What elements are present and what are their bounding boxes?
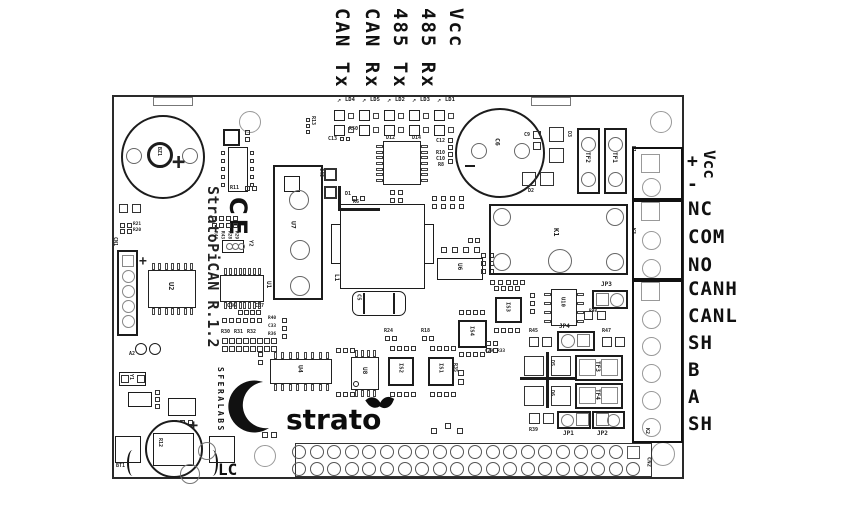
- ic-pin: [311, 352, 314, 359]
- header-pin: [292, 462, 306, 476]
- pad-square: [602, 337, 612, 347]
- header-pin: [433, 462, 447, 476]
- pad-square: [577, 334, 590, 347]
- ref-label-cn1: CN1: [112, 237, 117, 246]
- pad-square: [250, 310, 255, 315]
- ic-pin: [296, 384, 299, 391]
- header-pin: [626, 462, 640, 476]
- ref-label-bz1: BZ1: [156, 147, 161, 156]
- ref-label-r11: R11: [230, 186, 239, 191]
- pad-square: [262, 432, 268, 438]
- ic-pin: [158, 308, 161, 315]
- pad-square: [236, 318, 241, 323]
- pad-square: [233, 223, 238, 228]
- pad-square: [236, 346, 242, 352]
- pad-square: [522, 172, 536, 186]
- pcb-layout-diagram: StratoPiCAN R.1.2 CE SFERALABS strato LC…: [0, 0, 841, 512]
- header-pin: [503, 462, 517, 476]
- pad-circle: [514, 143, 530, 159]
- pad-square: [444, 392, 449, 397]
- pad-square: [244, 310, 249, 315]
- terminal-label-polarity: -: [687, 176, 698, 194]
- pad-square: [271, 338, 277, 344]
- pad-square: [398, 127, 404, 133]
- ref-label-r39: R39: [529, 428, 538, 433]
- pad-square: [127, 229, 132, 234]
- pad-square: [448, 127, 454, 133]
- ref-label-r21: R21: [133, 223, 141, 228]
- pad-square: [437, 392, 442, 397]
- pad-square: [350, 348, 355, 353]
- ic-u10: [551, 289, 577, 326]
- terminal-label-canh: CANH: [688, 280, 738, 299]
- ic-pin: [253, 268, 256, 275]
- led-label-ld4: LD4: [345, 98, 355, 104]
- pad-circle: [122, 315, 135, 328]
- pad-circle: [353, 381, 359, 387]
- ic-pin: [274, 384, 277, 391]
- ref-label-d5: D5: [549, 360, 554, 366]
- pad-square: [324, 186, 337, 199]
- component-outline: [128, 392, 152, 407]
- ref-label-c33: C33: [268, 325, 276, 330]
- pad-circle: [135, 343, 147, 355]
- ic-pin: [304, 384, 307, 391]
- ref-label-tf1: TF1: [611, 152, 617, 163]
- pad-circle: [289, 190, 309, 210]
- ref-label-r13: R13: [310, 116, 315, 125]
- terminal-pin-circle: [642, 391, 661, 410]
- terminal-pin-circle: [642, 310, 661, 329]
- led-pad: [409, 125, 420, 136]
- ic-pin: [224, 268, 227, 275]
- pad-circle: [581, 172, 596, 187]
- signal-label-485-tx: 485 Tx: [390, 8, 409, 89]
- header-pin: [609, 462, 623, 476]
- ic-pin: [376, 168, 383, 171]
- pad-square: [340, 137, 344, 141]
- ref-label-a2: A2: [129, 352, 135, 357]
- led-label-ld5: LD5: [370, 98, 380, 104]
- ic-pin: [421, 173, 428, 176]
- mount-hole: [651, 442, 675, 466]
- pad-square: [221, 175, 225, 179]
- pad-square: [245, 130, 250, 135]
- pad-square: [481, 261, 486, 266]
- pad-square: [404, 346, 409, 351]
- pad-square: [431, 428, 437, 434]
- pad-square: [441, 247, 447, 253]
- ref-label-r43: R43: [219, 231, 224, 239]
- signal-label-485-rx: 485 Rx: [418, 8, 437, 89]
- ic-pin: [544, 311, 551, 314]
- pad-square: [336, 348, 341, 353]
- ref-label-u4: U4: [297, 365, 304, 373]
- pad-square: [250, 159, 254, 163]
- pad-square: [390, 198, 395, 203]
- pad-square: [444, 346, 449, 351]
- pad-square: [250, 346, 256, 352]
- ic-pin: [421, 168, 428, 171]
- terminal-pin-circle: [642, 259, 661, 278]
- pad-square: [458, 379, 464, 385]
- ic-pin: [289, 352, 292, 359]
- ic-pin: [234, 268, 237, 275]
- led-pad: [409, 110, 420, 121]
- ic-pin: [171, 308, 174, 315]
- ic-pin: [248, 268, 251, 275]
- pad-square: [373, 127, 379, 133]
- pad-square: [221, 159, 225, 163]
- pad-square: [463, 247, 469, 253]
- header-pin: [468, 445, 482, 459]
- ic-pin: [577, 320, 584, 323]
- header-pin: [433, 445, 447, 459]
- ref-label-is1: IS1: [437, 363, 443, 373]
- pad-square: [459, 196, 464, 201]
- ref-label-u6: U6: [456, 263, 462, 270]
- board-name-silkscreen: StratoPiCAN R.1.2: [205, 186, 220, 348]
- led-pad: [384, 125, 395, 136]
- led-pad: [334, 125, 345, 136]
- ic-pin: [243, 302, 246, 309]
- ic-pin: [376, 173, 383, 176]
- ic-pin: [421, 156, 428, 159]
- header-pin: [398, 462, 412, 476]
- pad-square: [222, 318, 227, 323]
- header-pin: [398, 445, 412, 459]
- ref-label-jp2: JP2: [597, 431, 608, 437]
- header-pin: [380, 462, 394, 476]
- terminal-pin-circle: [642, 337, 661, 356]
- ic-pin: [304, 352, 307, 359]
- header-pin: [310, 445, 324, 459]
- mount-hole: [650, 111, 672, 133]
- header-pin: [538, 462, 552, 476]
- pad-square: [137, 375, 145, 383]
- mount-hole: [254, 445, 276, 467]
- header-pin: [521, 462, 535, 476]
- pad-square: [250, 167, 254, 171]
- pad-square: [256, 310, 261, 315]
- pad-square: [250, 175, 254, 179]
- pad-square: [252, 186, 257, 191]
- pad-square: [132, 204, 141, 213]
- pad-square: [459, 352, 464, 357]
- component-outline: [223, 129, 240, 146]
- pad-circle: [548, 249, 572, 273]
- ic-pin: [165, 308, 168, 315]
- pad-square: [597, 311, 606, 320]
- pad-square: [282, 318, 287, 323]
- ic-pin: [319, 352, 322, 359]
- header-pin: [345, 462, 359, 476]
- pad-square: [533, 142, 541, 150]
- pad-circle: [122, 285, 135, 298]
- pad-square: [120, 229, 125, 234]
- ic-pin: [373, 390, 376, 397]
- led-label-ld2: LD2: [395, 98, 405, 104]
- pad-square: [480, 310, 485, 315]
- ic-pin: [361, 390, 364, 397]
- header-pin: [310, 462, 324, 476]
- pad-square: [468, 238, 473, 243]
- ic-pin: [326, 352, 329, 359]
- led-arrow-icon: ↗: [337, 97, 341, 104]
- pad-square: [445, 423, 451, 429]
- pad-square: [520, 280, 525, 285]
- pad-square: [549, 148, 564, 163]
- pad-square: [221, 167, 225, 171]
- terminal-block-k2: [632, 280, 683, 443]
- pad-circle: [126, 148, 142, 164]
- pad-circle: [122, 270, 135, 283]
- pad-circle: [607, 414, 620, 427]
- ic-pin: [319, 384, 322, 391]
- ic-pin: [177, 308, 180, 315]
- ic-pin: [190, 308, 193, 315]
- transformer-l1: [340, 204, 425, 289]
- terminal-label-com: COM: [688, 228, 725, 247]
- pad-circle: [610, 293, 624, 307]
- ref-label-c36: C36: [227, 304, 236, 309]
- header-pin: [450, 462, 464, 476]
- pad-square: [229, 346, 235, 352]
- pad-square: [212, 223, 217, 228]
- ic-pin: [243, 268, 246, 275]
- ref-label-u2: U2: [167, 282, 174, 290]
- led-arrow-icon: ↗: [412, 97, 416, 104]
- pad-square: [513, 280, 518, 285]
- ic-pin: [184, 263, 187, 270]
- pad-square: [122, 255, 134, 267]
- pad-square: [219, 223, 224, 228]
- ref-label-bt1: BT1: [116, 464, 125, 469]
- pad-square: [524, 386, 544, 406]
- pad-square: [243, 338, 249, 344]
- pad-square: [257, 338, 263, 344]
- pad-square: [390, 346, 395, 351]
- ic-pin: [544, 293, 551, 296]
- ic-pin: [577, 293, 584, 296]
- pad-square: [481, 269, 486, 274]
- pad-square: [226, 216, 231, 221]
- ic-pin: [367, 350, 370, 357]
- ref-label-r35: R35: [452, 363, 457, 372]
- ic-pin: [190, 263, 193, 270]
- pad-circle: [608, 137, 623, 152]
- pad-square: [398, 113, 404, 119]
- pad-square: [452, 247, 458, 253]
- ic-pin: [239, 268, 242, 275]
- ref-label-d3: D3: [566, 131, 571, 137]
- ref-label-is3: IS3: [504, 302, 510, 312]
- pad-square: [324, 168, 337, 181]
- ref-label-d12: D12: [386, 136, 395, 141]
- header-pin: [556, 445, 570, 459]
- led-pad: [434, 110, 445, 121]
- header-pin: [345, 445, 359, 459]
- led-pad: [384, 110, 395, 121]
- led-pad: [359, 110, 370, 121]
- pad-square: [524, 356, 544, 376]
- pad-square: [508, 328, 513, 333]
- ref-label-r28: R28: [226, 231, 231, 239]
- pad-square: [245, 186, 250, 191]
- ref-label-r33: R33: [497, 350, 505, 355]
- pad-square: [336, 392, 341, 397]
- pad-square: [448, 152, 453, 157]
- pad-square: [397, 346, 402, 351]
- led-label-ld3: LD3: [420, 98, 430, 104]
- ic-pin: [376, 145, 383, 148]
- pad-square: [348, 113, 354, 119]
- header-pin: [362, 462, 376, 476]
- ref-label-c12: C12: [436, 139, 445, 144]
- pad-square: [474, 247, 480, 253]
- ref-label-d2: D2: [528, 189, 534, 194]
- ic-pin: [158, 263, 161, 270]
- ref-label-l1: L1: [333, 274, 339, 281]
- pad-circle: [238, 243, 245, 250]
- pad-square: [264, 346, 270, 352]
- pad-circle: [149, 343, 161, 355]
- ref-label-c9: C9: [524, 133, 530, 138]
- pad-square: [430, 346, 435, 351]
- pad-circle: [290, 240, 310, 260]
- pad-square: [466, 310, 471, 315]
- mount-hole: [239, 111, 261, 133]
- ref-label-u8: U8: [361, 367, 367, 374]
- pad-square: [551, 356, 571, 376]
- pad-square: [257, 318, 262, 323]
- sferalabs-swoosh-icon: [222, 376, 280, 436]
- pad-square: [493, 341, 498, 346]
- pad-square: [360, 196, 365, 201]
- ic-pin: [184, 308, 187, 315]
- pad-square: [466, 352, 471, 357]
- pad-square: [473, 310, 478, 315]
- pad-square: [398, 198, 403, 203]
- ic-pin: [373, 350, 376, 357]
- ic-pin: [171, 263, 174, 270]
- pad-square: [238, 310, 243, 315]
- ref-label-tf3: TF3: [594, 361, 600, 372]
- pad-square: [459, 310, 464, 315]
- pad-square: [250, 318, 255, 323]
- pad-square: [543, 413, 554, 424]
- ic-pin: [421, 145, 428, 148]
- ic-pin: [239, 302, 242, 309]
- pad-square: [373, 113, 379, 119]
- pad-square: [451, 346, 456, 351]
- pad-square: [221, 151, 225, 155]
- pad-square: [221, 183, 225, 187]
- signal-label-can-rx: CAN Rx: [362, 8, 381, 89]
- pad-circle: [290, 276, 310, 296]
- ref-label-r29: R29: [233, 231, 238, 239]
- pad-square: [245, 137, 250, 142]
- ic-pin: [289, 384, 292, 391]
- ic-pin: [376, 179, 383, 182]
- pad-square: [533, 131, 541, 139]
- pad-square: [229, 338, 235, 344]
- pad-circle: [581, 137, 596, 152]
- pad-circle: [561, 414, 574, 427]
- ic-pin: [367, 390, 370, 397]
- ref-label-r45: R45: [529, 329, 538, 334]
- ref-label-r30: R30: [221, 330, 230, 335]
- pad-square: [501, 286, 506, 291]
- ref-label-tf2: TF2: [584, 152, 590, 163]
- ref-label-jp1: JP1: [563, 431, 574, 437]
- ref-label-d1: D1: [345, 192, 351, 197]
- ic-pin: [577, 311, 584, 314]
- ref-label-c37: C37: [255, 304, 264, 309]
- ic-pin: [326, 384, 329, 391]
- terminal-pin-square: [641, 202, 660, 221]
- pad-square: [551, 386, 571, 406]
- pad-square: [229, 318, 234, 323]
- ref-label-k1: K1: [552, 228, 559, 236]
- pad-square: [490, 280, 495, 285]
- pad-square: [346, 137, 350, 141]
- pad-square: [601, 359, 618, 376]
- pad-square: [271, 432, 277, 438]
- pad-square: [457, 428, 463, 434]
- pad-square: [430, 392, 435, 397]
- ref-label-d6: D6: [549, 390, 554, 396]
- terminal-pin-square: [641, 282, 660, 301]
- pad-square: [475, 238, 480, 243]
- ref-label-r48: R48: [589, 310, 597, 315]
- pad-square: [448, 145, 453, 150]
- ic-pin: [577, 302, 584, 305]
- ref-label-r47: R47: [602, 329, 611, 334]
- pad-circle: [180, 464, 200, 484]
- pad-square: [398, 190, 403, 195]
- pad-square: [127, 223, 132, 228]
- ic-pin: [355, 350, 358, 357]
- strato-logo: strato: [286, 406, 381, 434]
- signal-label-vcc: Vcc: [446, 8, 465, 48]
- ic-pin: [421, 151, 428, 154]
- ref-label-c29: C29: [485, 350, 493, 355]
- pad-circle: [561, 334, 575, 348]
- ic-pin: [165, 263, 168, 270]
- header-pin: [327, 462, 341, 476]
- ref-label-tf4: TF4: [594, 389, 600, 400]
- pad-square: [155, 404, 160, 409]
- pad-square: [385, 336, 390, 341]
- led-arrow-icon: ↗: [387, 97, 391, 104]
- pad-circle: [198, 442, 216, 460]
- header-pin: [556, 462, 570, 476]
- ic-pin: [544, 320, 551, 323]
- pad-square: [437, 346, 442, 351]
- pad-square: [222, 346, 228, 352]
- pad-square: [481, 253, 486, 258]
- pad-circle: [493, 253, 511, 271]
- ref-label-r12: R12: [157, 438, 162, 447]
- pad-square: [459, 204, 464, 209]
- led-pad: [359, 125, 370, 136]
- pad-square: [530, 301, 535, 306]
- terminal-pin-circle: [642, 178, 661, 197]
- pad-square: [343, 392, 348, 397]
- pad-circle: [471, 143, 487, 159]
- pad-square: [226, 223, 231, 228]
